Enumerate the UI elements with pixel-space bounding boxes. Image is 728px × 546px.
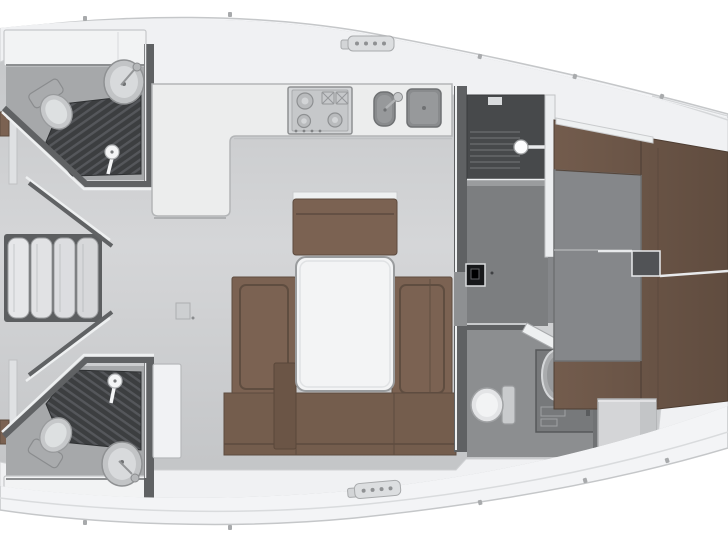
faucet bbox=[131, 474, 139, 482]
salon-table bbox=[296, 257, 394, 391]
yacht-floor-plan-svg bbox=[0, 0, 728, 546]
wash-basin bbox=[102, 442, 142, 486]
settee-backrest bbox=[274, 363, 296, 449]
head-door bbox=[153, 364, 181, 458]
faucet bbox=[133, 63, 141, 71]
bulkhead bbox=[454, 86, 467, 452]
floor-plan-image bbox=[0, 0, 728, 546]
dressing-floor bbox=[467, 186, 548, 326]
floor-hatch bbox=[176, 303, 190, 319]
toilet bbox=[471, 386, 515, 424]
deck-fitting-top bbox=[341, 36, 394, 51]
nav-seat bbox=[293, 192, 397, 255]
berth-filler-notch bbox=[632, 251, 660, 276]
wash-basin bbox=[104, 60, 144, 104]
cabin-floor bbox=[554, 170, 641, 361]
galley-sinks bbox=[374, 89, 441, 127]
settee-bottom bbox=[224, 393, 456, 455]
wardrobe-area bbox=[466, 95, 556, 326]
stove bbox=[288, 87, 352, 134]
